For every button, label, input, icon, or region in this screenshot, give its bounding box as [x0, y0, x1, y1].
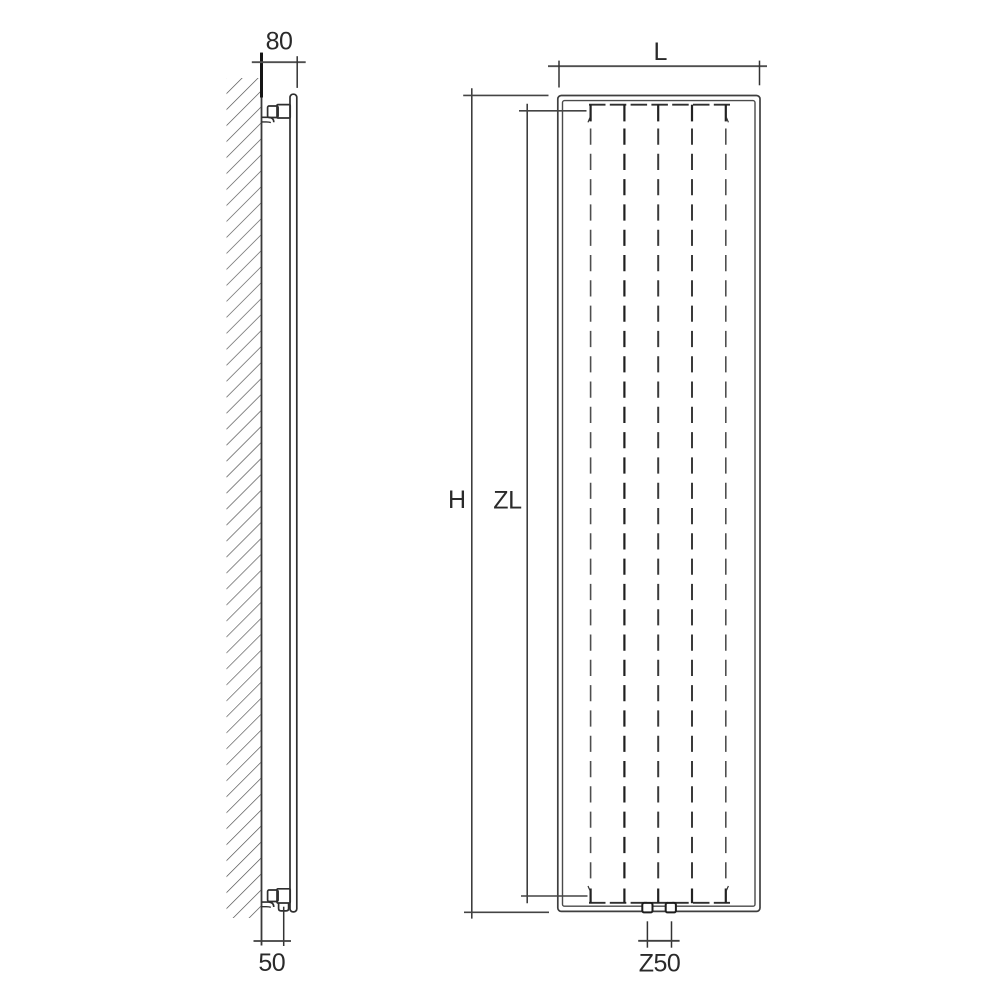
svg-text:80: 80	[266, 27, 293, 55]
svg-text:L: L	[654, 38, 668, 66]
svg-text:Z50: Z50	[639, 949, 681, 977]
svg-text:50: 50	[258, 949, 285, 977]
svg-text:H: H	[448, 486, 466, 514]
svg-text:ZL: ZL	[493, 487, 522, 515]
